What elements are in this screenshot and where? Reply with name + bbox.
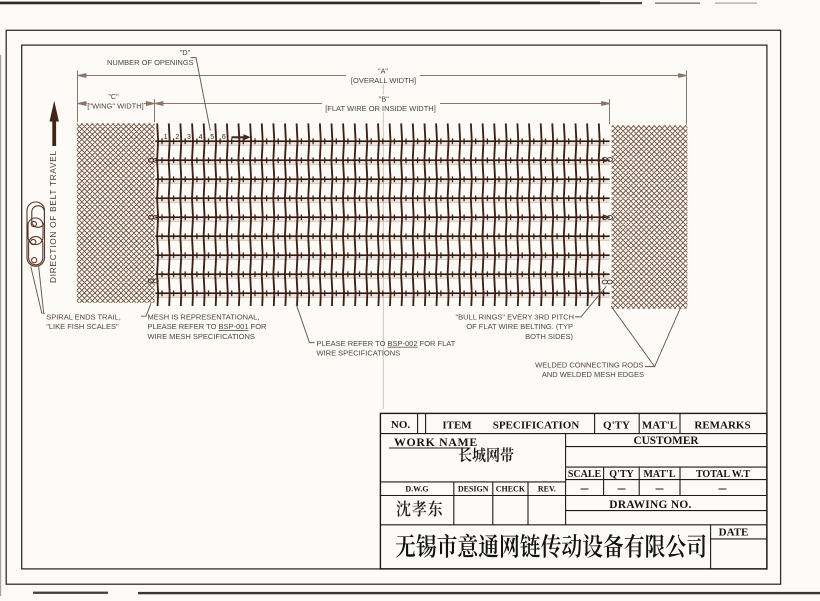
svg-text:2: 2 bbox=[175, 134, 179, 141]
svg-text:4: 4 bbox=[199, 134, 203, 141]
svg-text:[OVERALL WIDTH]: [OVERALL WIDTH] bbox=[351, 76, 416, 85]
svg-text:MAT'L: MAT'L bbox=[642, 419, 677, 431]
svg-text:MAT'L: MAT'L bbox=[643, 469, 675, 480]
svg-text:Q'TY: Q'TY bbox=[609, 469, 634, 480]
svg-text:"D": "D" bbox=[180, 48, 191, 57]
svg-text:6: 6 bbox=[222, 134, 226, 141]
svg-text:5: 5 bbox=[210, 134, 214, 141]
svg-text:[FLAT WIRE OR INSIDE WIDTH]: [FLAT WIRE OR INSIDE WIDTH] bbox=[325, 104, 436, 113]
svg-text:DESIGN: DESIGN bbox=[458, 485, 489, 494]
svg-text:Q'TY: Q'TY bbox=[603, 419, 630, 431]
svg-text:WIRE SPECIFICATIONS: WIRE SPECIFICATIONS bbox=[317, 348, 401, 357]
svg-text:"LIKE FISH SCALES": "LIKE FISH SCALES" bbox=[46, 322, 119, 331]
svg-text:REMARKS: REMARKS bbox=[694, 419, 750, 431]
svg-text:"A": "A" bbox=[378, 66, 388, 75]
svg-text:ITEM: ITEM bbox=[442, 419, 472, 431]
svg-text:3: 3 bbox=[187, 134, 191, 141]
svg-text:PLEASE REFER TO BSP-001 FOR: PLEASE REFER TO BSP-001 FOR bbox=[148, 322, 268, 331]
svg-text:WORK NAME: WORK NAME bbox=[394, 435, 478, 449]
svg-text:"BULL RINGS" EVERY 3RD PITCH: "BULL RINGS" EVERY 3RD PITCH bbox=[455, 313, 574, 322]
svg-text:PLEASE REFER TO BSP-002 FOR FL: PLEASE REFER TO BSP-002 FOR FLAT bbox=[317, 339, 456, 348]
svg-text:"C": "C" bbox=[108, 92, 119, 101]
svg-text:REV.: REV. bbox=[538, 485, 556, 494]
svg-text:["WING" WIDTH]: ["WING" WIDTH] bbox=[87, 101, 144, 110]
svg-text:D.W.G: D.W.G bbox=[405, 485, 428, 494]
svg-text:SPECIFICATION: SPECIFICATION bbox=[493, 419, 580, 431]
svg-text:OF FLAT WIRE BELTING. (TYP: OF FLAT WIRE BELTING. (TYP bbox=[466, 322, 573, 331]
svg-text:NUMBER OF OPENINGS: NUMBER OF OPENINGS bbox=[107, 58, 194, 67]
svg-text:"B": "B" bbox=[379, 94, 389, 103]
svg-text:CHECK: CHECK bbox=[496, 485, 526, 494]
svg-text:CUSTOMER: CUSTOMER bbox=[633, 435, 699, 447]
svg-text:SPIRAL ENDS TRAIL,: SPIRAL ENDS TRAIL, bbox=[46, 313, 121, 322]
svg-text:WELDED CONNECTING RODS: WELDED CONNECTING RODS bbox=[535, 360, 643, 369]
svg-text:TOTAL W.T: TOTAL W.T bbox=[696, 469, 750, 480]
svg-text:WIRE MESH SPECIFICATIONS: WIRE MESH SPECIFICATIONS bbox=[148, 332, 255, 341]
svg-text:NO.: NO. bbox=[391, 419, 411, 431]
svg-text:DATE: DATE bbox=[719, 526, 749, 538]
svg-text:DRAWING NO.: DRAWING NO. bbox=[609, 499, 691, 511]
svg-text:1: 1 bbox=[164, 134, 168, 141]
svg-text:BOTH SIDES): BOTH SIDES) bbox=[525, 332, 573, 341]
svg-text:SCALE: SCALE bbox=[568, 469, 602, 480]
svg-text:AND WELDED MESH EDGES: AND WELDED MESH EDGES bbox=[542, 370, 644, 379]
svg-text:DIRECTION OF BELT TRAVEL: DIRECTION OF BELT TRAVEL bbox=[48, 150, 58, 283]
svg-text:MESH IS REPRESENTATIONAL,: MESH IS REPRESENTATIONAL, bbox=[148, 313, 260, 322]
